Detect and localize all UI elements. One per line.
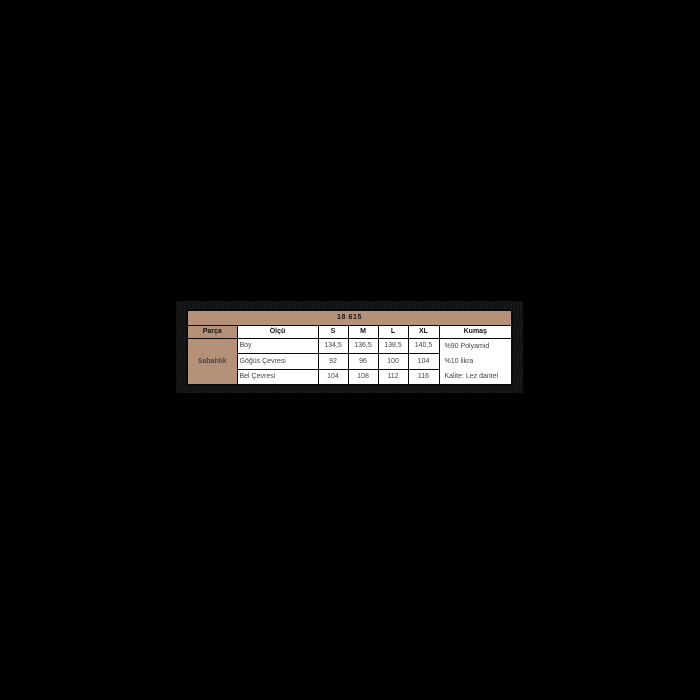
column-header-kumas: Kumaş [439, 326, 512, 339]
value-m: 108 [348, 369, 378, 385]
table-row-boy: Sabahlık Boy 134,5 136,5 138,5 140,5 %90… [187, 339, 512, 354]
value-m: 96 [348, 354, 378, 369]
measure-label: Göğüs Çevresi [237, 354, 318, 369]
column-header-parca: Parça [187, 326, 237, 339]
value-l: 138,5 [378, 339, 408, 354]
value-s: 134,5 [318, 339, 348, 354]
black-canvas: 18 615 Parça Ölçü S M L XL Kumaş Sabahlı… [0, 0, 700, 700]
model-number: 18 615 [187, 310, 512, 326]
column-header-m: M [348, 326, 378, 339]
value-s: 104 [318, 369, 348, 385]
value-s: 92 [318, 354, 348, 369]
value-xl: 140,5 [408, 339, 439, 354]
column-header-xl: XL [408, 326, 439, 339]
measure-label: Boy [237, 339, 318, 354]
garment-group-label: Sabahlık [187, 339, 237, 386]
value-l: 112 [378, 369, 408, 385]
fabric-info-cell: %90 Polyamid %10 likra Kalite: Lez dante… [439, 339, 512, 386]
column-header-olcu: Ölçü [237, 326, 318, 339]
column-header-row: Parça Ölçü S M L XL Kumaş [187, 326, 512, 339]
size-chart-table: 18 615 Parça Ölçü S M L XL Kumaş Sabahlı… [186, 309, 513, 386]
fabric-line-1: %90 Polyamid [442, 339, 510, 354]
value-l: 100 [378, 354, 408, 369]
table-title-row: 18 615 [187, 310, 512, 326]
value-xl: 104 [408, 354, 439, 369]
measure-label: Bel Çevresi [237, 369, 318, 385]
column-header-s: S [318, 326, 348, 339]
value-xl: 116 [408, 369, 439, 385]
fabric-line-3: Kalite: Lez dantel [442, 369, 510, 384]
fabric-line-2: %10 likra [442, 354, 510, 369]
column-header-l: L [378, 326, 408, 339]
value-m: 136,5 [348, 339, 378, 354]
size-chart: 18 615 Parça Ölçü S M L XL Kumaş Sabahlı… [186, 309, 513, 386]
